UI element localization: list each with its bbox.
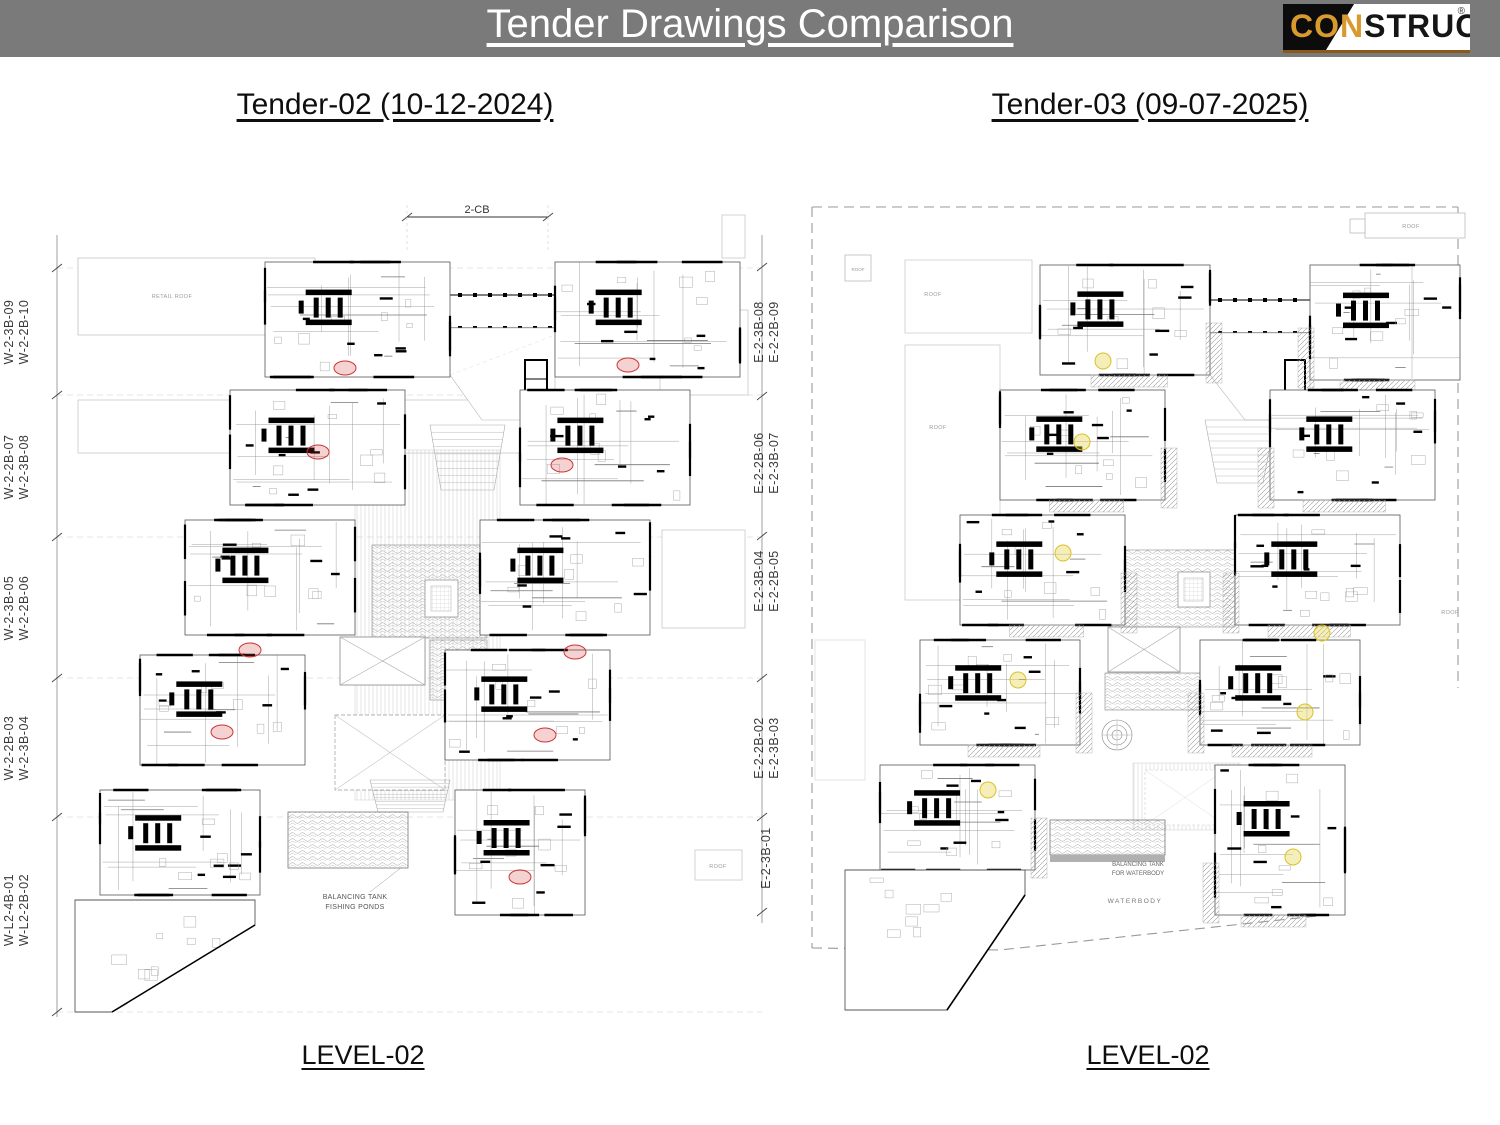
waterbody-label: WATERBODY [1108, 898, 1163, 905]
balancing-tank-label: BALANCING TANK [323, 894, 388, 901]
grid-label: E-2-2B-09 [767, 301, 781, 362]
logo-wordmark-struct: STRUCT [1364, 8, 1470, 44]
grid-label: W-2-3B-09 [2, 300, 16, 365]
grid-label: W-2-2B-03 [2, 716, 16, 781]
left-panel-heading: Tender-02 (10-12-2024) [237, 88, 554, 122]
roof-label: ROOF [1441, 610, 1459, 616]
grid-label: W-L2-2B-02 [17, 874, 31, 946]
for-waterbody-label: FOR WATERBODY [1112, 871, 1164, 877]
roof-label: ROOF [709, 864, 727, 870]
balancing-tank-label: BALANCING TANK [1112, 862, 1164, 868]
grid-label: W-2-3B-04 [17, 716, 31, 781]
grid-label: E-2-2B-02 [752, 717, 766, 778]
grid-label: W-2-2B-10 [17, 300, 31, 365]
floor-plan-tender-02: 2-CB W-2-3B-09 W-2-2B-10 W-2-2B-07 W-2-3… [0, 195, 790, 1040]
grid-label: W-2-2B-07 [2, 435, 16, 500]
retail-roof-label: RETAIL ROOF [152, 294, 193, 300]
grid-label: W-L2-4B-01 [2, 874, 16, 946]
registered-mark-icon: ® [1458, 6, 1465, 17]
grid-label: E-2-3B-01 [759, 827, 773, 888]
grid-label: E-2-3B-03 [767, 717, 781, 778]
floor-plan-drawing-right [812, 207, 1465, 1010]
left-level-label: LEVEL-02 [301, 1040, 424, 1071]
fishing-ponds-label: FISHING PONDS [325, 904, 384, 911]
right-level-label: LEVEL-02 [1086, 1040, 1209, 1071]
roof-label: ROOF [1402, 224, 1420, 230]
floor-plan-tender-03: ROOF ROOF ROOF ROOF ROOF BALANCING TANK … [805, 195, 1470, 1045]
logo-wordmark: CONSTRUCT [1290, 8, 1470, 45]
grid-label: W-2-3B-08 [17, 435, 31, 500]
floor-plan-drawing-left [52, 205, 767, 1017]
dimension-label: 2-CB [464, 204, 489, 216]
grid-label: E-2-3B-04 [752, 550, 766, 611]
grid-label: W-2-2B-06 [17, 576, 31, 641]
page-title: Tender Drawings Comparison [0, 2, 1500, 47]
grid-label: E-2-3B-08 [752, 301, 766, 362]
roof-label: ROOF [852, 267, 865, 272]
grid-label: W-2-3B-05 [2, 576, 16, 641]
grid-label: E-2-2B-06 [752, 432, 766, 493]
right-panel-heading: Tender-03 (09-07-2025) [992, 88, 1309, 122]
roof-label: ROOF [924, 292, 942, 298]
grid-label: E-2-3B-07 [767, 432, 781, 493]
logo-wordmark-con: CON [1290, 8, 1364, 44]
construct-logo: CONSTRUCT ® [1283, 4, 1470, 53]
roof-label: ROOF [929, 425, 947, 431]
grid-label: E-2-2B-05 [767, 550, 781, 611]
slide: Tender Drawings Comparison CONSTRUCT ® T… [0, 0, 1500, 1125]
